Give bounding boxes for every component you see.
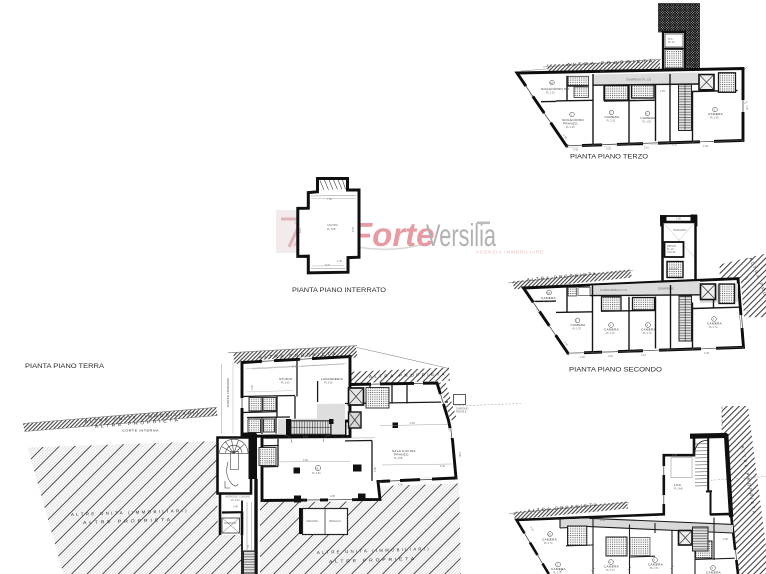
svg-text:2.30: 2.30 — [600, 70, 605, 73]
svg-text:PERGOLA: PERGOLA — [329, 520, 341, 523]
svg-text:VERANDA: VERANDA — [306, 520, 318, 523]
svg-text:CAMERA: CAMERA — [706, 571, 722, 574]
svg-text:AGENZIA IMMOBILIARE: AGENZIA IMMOBILIARE — [476, 250, 544, 255]
svg-text:3.20: 3.20 — [608, 355, 613, 358]
svg-text:DISIMPEGNO: DISIMPEGNO — [658, 288, 674, 291]
svg-text:CAMERA: CAMERA — [708, 112, 724, 116]
svg-text:4.95: 4.95 — [330, 495, 335, 498]
svg-text:5.45: 5.45 — [292, 366, 297, 369]
svg-text:5.20: 5.20 — [325, 264, 330, 267]
svg-text:H=2.30: H=2.30 — [667, 251, 676, 254]
svg-text:2.20: 2.20 — [580, 356, 585, 359]
svg-text:LAVANDERIA: LAVANDERIA — [321, 377, 344, 381]
svg-text:CAMERA: CAMERA — [641, 116, 657, 120]
svg-text:PL 2.70: PL 2.70 — [544, 542, 553, 545]
svg-text:1B: 1B — [548, 533, 551, 536]
svg-text:PL 2.70: PL 2.70 — [606, 569, 615, 572]
svg-text:PL 2.70: PL 2.70 — [606, 332, 615, 335]
svg-text:CAMERA: CAMERA — [541, 296, 557, 300]
svg-text:2.80: 2.80 — [723, 538, 728, 541]
svg-text:CAMERA: CAMERA — [542, 538, 558, 542]
svg-text:PL 2.70: PL 2.70 — [709, 326, 718, 329]
svg-text:PRANZO: PRANZO — [394, 453, 409, 457]
svg-text:5.95: 5.95 — [374, 467, 377, 472]
svg-text:CANTINA: CANTINA — [327, 224, 338, 227]
svg-text:1.90: 1.90 — [686, 65, 691, 68]
svg-text:PL 1AB: PL 1AB — [394, 457, 403, 460]
svg-text:CAMERA: CAMERA — [571, 323, 587, 327]
svg-text:PIANTA PIANO SECONDO: PIANTA PIANO SECONDO — [569, 367, 662, 374]
svg-text:GIARDINO: GIARDINO — [224, 522, 236, 525]
svg-text:SOGGIORNO PR.: SOGGIORNO PR. — [541, 87, 570, 91]
svg-text:PL 2.70: PL 2.70 — [573, 328, 582, 331]
svg-text:9.25: 9.25 — [352, 227, 355, 232]
svg-text:PL 2.70: PL 2.70 — [643, 332, 652, 335]
svg-text:PL 1AB: PL 1AB — [674, 488, 683, 491]
svg-text:1.35: 1.35 — [337, 260, 342, 263]
svg-text:6.1: 6.1 — [246, 545, 249, 549]
svg-text:2.40: 2.40 — [233, 506, 238, 509]
svg-text:CAMERA: CAMERA — [605, 115, 621, 119]
svg-text:PL 3.00: PL 3.00 — [231, 499, 240, 502]
svg-text:3.90: 3.90 — [458, 452, 461, 458]
svg-text:CORTE INTERNA: CORTE INTERNA — [226, 377, 230, 407]
svg-text:CAMERA: CAMERA — [641, 328, 657, 332]
svg-text:8.30: 8.30 — [600, 519, 605, 522]
svg-text:3.10: 3.10 — [641, 354, 646, 357]
svg-text:1B: 1B — [547, 292, 550, 295]
svg-text:CAMERA: CAMERA — [707, 322, 723, 326]
svg-text:PL 3.00: PL 3.00 — [312, 472, 321, 475]
svg-text:CORTE INTERNA: CORTE INTERNA — [122, 429, 160, 433]
svg-text:PL 2.70: PL 2.70 — [650, 567, 659, 570]
svg-text:4.20: 4.20 — [251, 385, 254, 390]
svg-text:1.90: 1.90 — [676, 218, 681, 221]
svg-text:CAMERA: CAMERA — [648, 563, 664, 567]
svg-text:PL 3.00: PL 3.00 — [281, 382, 290, 385]
svg-text:PL 2.05: PL 2.05 — [710, 117, 719, 120]
svg-text:DISIMPEGNO PL 1.05: DISIMPEGNO PL 1.05 — [626, 79, 652, 82]
svg-text:PL 1C: PL 1C — [668, 41, 675, 44]
svg-text:1A: 1A — [316, 467, 319, 470]
svg-text:PIANTA PIANO INTERRATO: PIANTA PIANO INTERRATO — [292, 287, 386, 294]
svg-text:TERRAZZO: TERRAZZO — [673, 229, 687, 232]
svg-text:2.50: 2.50 — [672, 454, 677, 457]
svg-text:PIANTA PIANO TERZO: PIANTA PIANO TERZO — [570, 154, 648, 161]
svg-text:PL 2.05: PL 2.05 — [566, 126, 575, 129]
svg-text:3.45: 3.45 — [573, 149, 578, 152]
svg-text:3.10: 3.10 — [644, 146, 649, 149]
svg-text:6.60: 6.60 — [303, 436, 308, 439]
svg-text:PL 1AB: PL 1AB — [327, 228, 336, 231]
svg-text:PL 2.05: PL 2.05 — [643, 121, 652, 124]
svg-text:6.30: 6.30 — [303, 459, 308, 462]
svg-text:1B: 1B — [550, 82, 553, 85]
svg-text:Forte: Forte — [352, 216, 435, 253]
svg-text:7.20: 7.20 — [745, 105, 748, 110]
svg-text:4.10: 4.10 — [299, 228, 302, 233]
svg-text:4.45: 4.45 — [703, 145, 708, 148]
svg-text:BAGNO: BAGNO — [669, 268, 678, 271]
svg-text:PL 2.05: PL 2.05 — [607, 120, 616, 123]
svg-text:6.20: 6.20 — [410, 422, 415, 425]
svg-text:PIANTA PIANO TERRA: PIANTA PIANO TERRA — [25, 363, 105, 370]
svg-text:4.30: 4.30 — [440, 465, 445, 468]
svg-text:1.55: 1.55 — [660, 90, 665, 93]
svg-text:PRANZO: PRANZO — [563, 122, 578, 126]
svg-text:PL 1.20: PL 1.20 — [546, 92, 555, 95]
svg-text:PENSILE: PENSILE — [456, 411, 467, 414]
svg-text:PL 2.70: PL 2.70 — [543, 301, 552, 304]
svg-text:LOC.: LOC. — [674, 483, 682, 487]
svg-text:CAMERA: CAMERA — [604, 565, 620, 569]
svg-text:STUDIO: STUDIO — [279, 377, 293, 381]
svg-text:GUARDAROBA PL 2.70: GUARDAROBA PL 2.70 — [600, 289, 627, 292]
svg-text:4.45: 4.45 — [704, 352, 709, 355]
svg-text:4.00: 4.00 — [398, 484, 403, 487]
svg-text:3.20: 3.20 — [606, 148, 611, 151]
svg-text:1.10: 1.10 — [672, 144, 677, 147]
svg-text:CAMERA: CAMERA — [551, 567, 567, 571]
svg-text:CAMERA: CAMERA — [604, 328, 620, 332]
svg-text:PL 3.00: PL 3.00 — [324, 382, 333, 385]
